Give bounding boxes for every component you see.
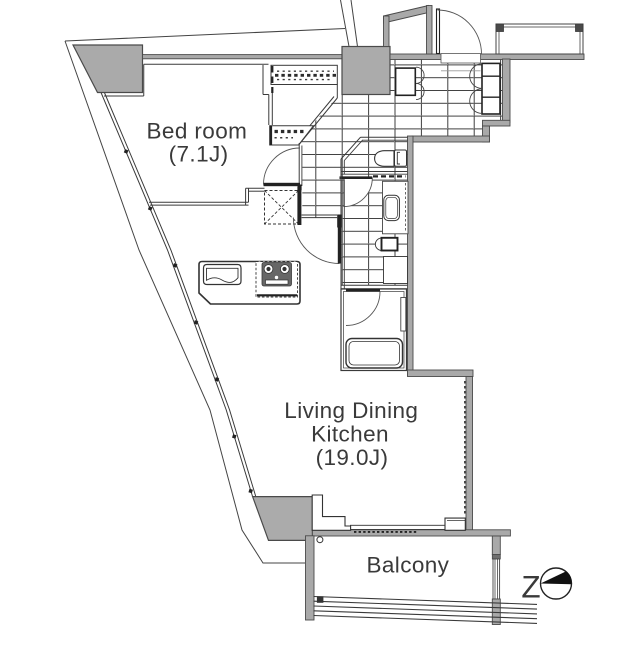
svg-text:Z: Z [521,569,540,605]
svg-text:(19.0J): (19.0J) [316,445,389,470]
svg-text:Living Dining: Living Dining [284,398,418,423]
svg-text:Bed room: Bed room [147,118,248,143]
svg-text:Balcony: Balcony [366,553,449,578]
svg-text:(7.1J): (7.1J) [169,141,229,166]
svg-text:Kitchen: Kitchen [311,422,389,447]
